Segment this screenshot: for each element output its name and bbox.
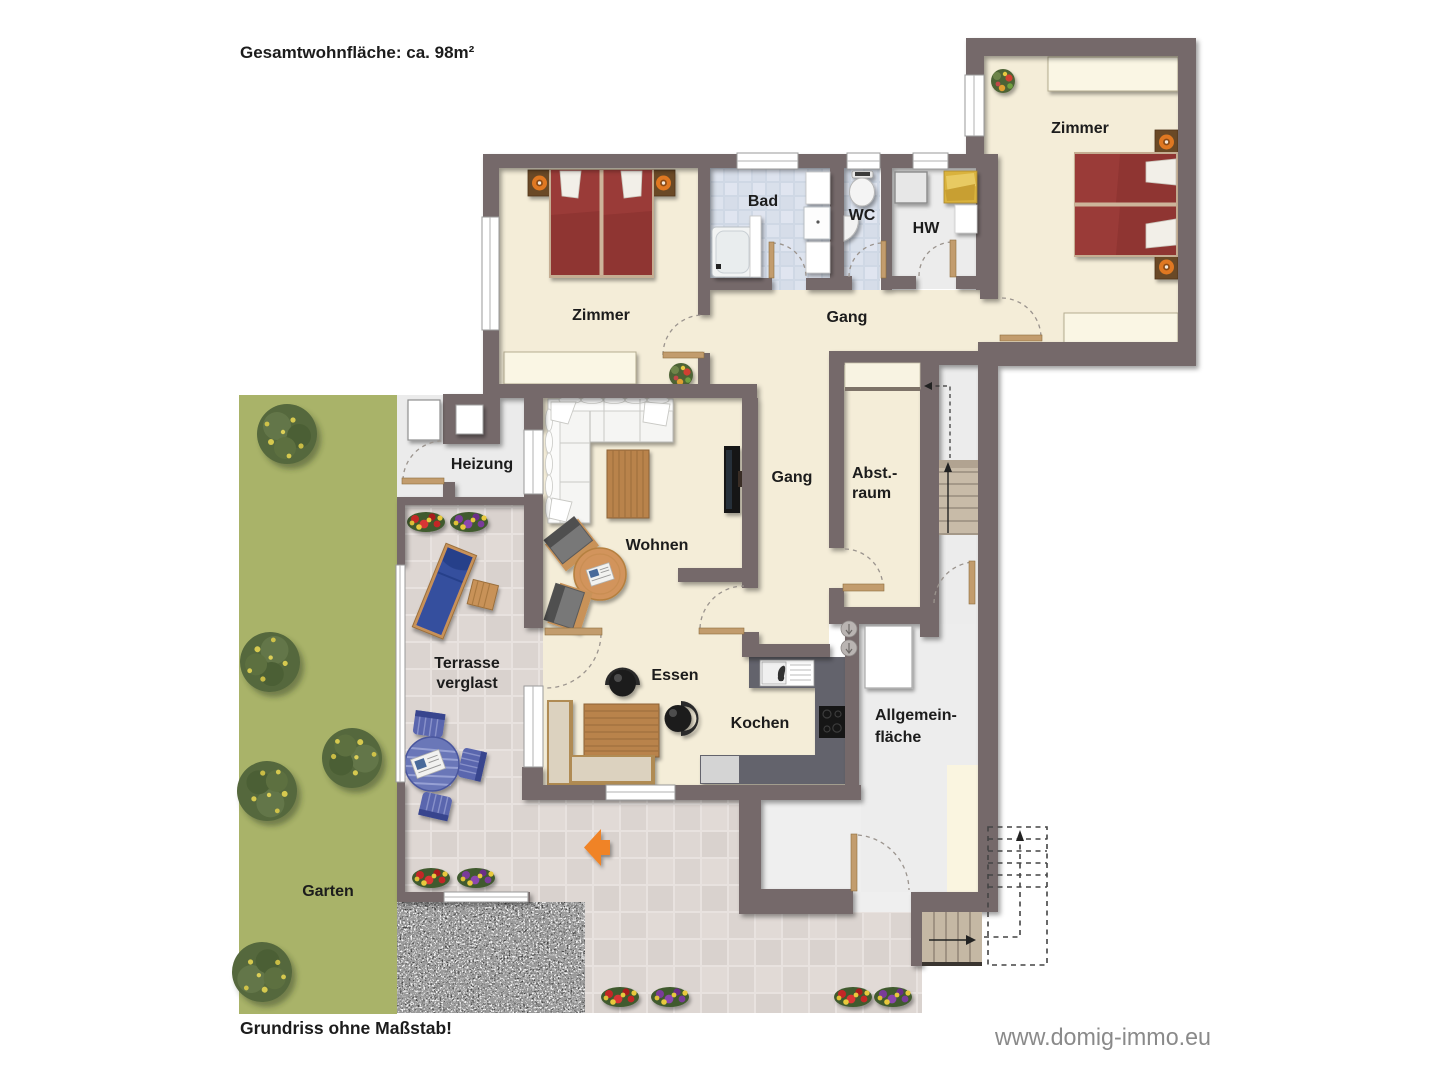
svg-text:Abst.-: Abst.- <box>852 465 897 482</box>
svg-text:WC: WC <box>849 207 876 224</box>
svg-text:Essen: Essen <box>651 667 698 684</box>
svg-text:Bad: Bad <box>748 193 778 210</box>
svg-text:www.domig-immo.eu: www.domig-immo.eu <box>994 1024 1211 1051</box>
svg-text:Gang: Gang <box>772 469 813 486</box>
svg-text:Kochen: Kochen <box>731 715 790 732</box>
svg-text:verglast: verglast <box>436 675 498 692</box>
svg-text:Zimmer: Zimmer <box>572 307 630 324</box>
svg-text:Heizung: Heizung <box>451 456 513 473</box>
svg-text:Wohnen: Wohnen <box>626 537 689 554</box>
svg-text:Terrasse: Terrasse <box>434 655 500 672</box>
svg-text:HW: HW <box>913 220 941 237</box>
svg-text:Gesamtwohnfläche: ca. 98m²: Gesamtwohnfläche: ca. 98m² <box>240 43 475 62</box>
svg-text:fläche: fläche <box>875 729 921 746</box>
svg-text:raum: raum <box>852 485 891 502</box>
svg-text:Gang: Gang <box>827 309 868 326</box>
svg-text:Grundriss ohne Maßstab!: Grundriss ohne Maßstab! <box>240 1018 452 1038</box>
svg-text:Zimmer: Zimmer <box>1051 120 1109 137</box>
svg-text:Allgemein-: Allgemein- <box>875 707 957 724</box>
svg-text:Garten: Garten <box>302 883 354 900</box>
